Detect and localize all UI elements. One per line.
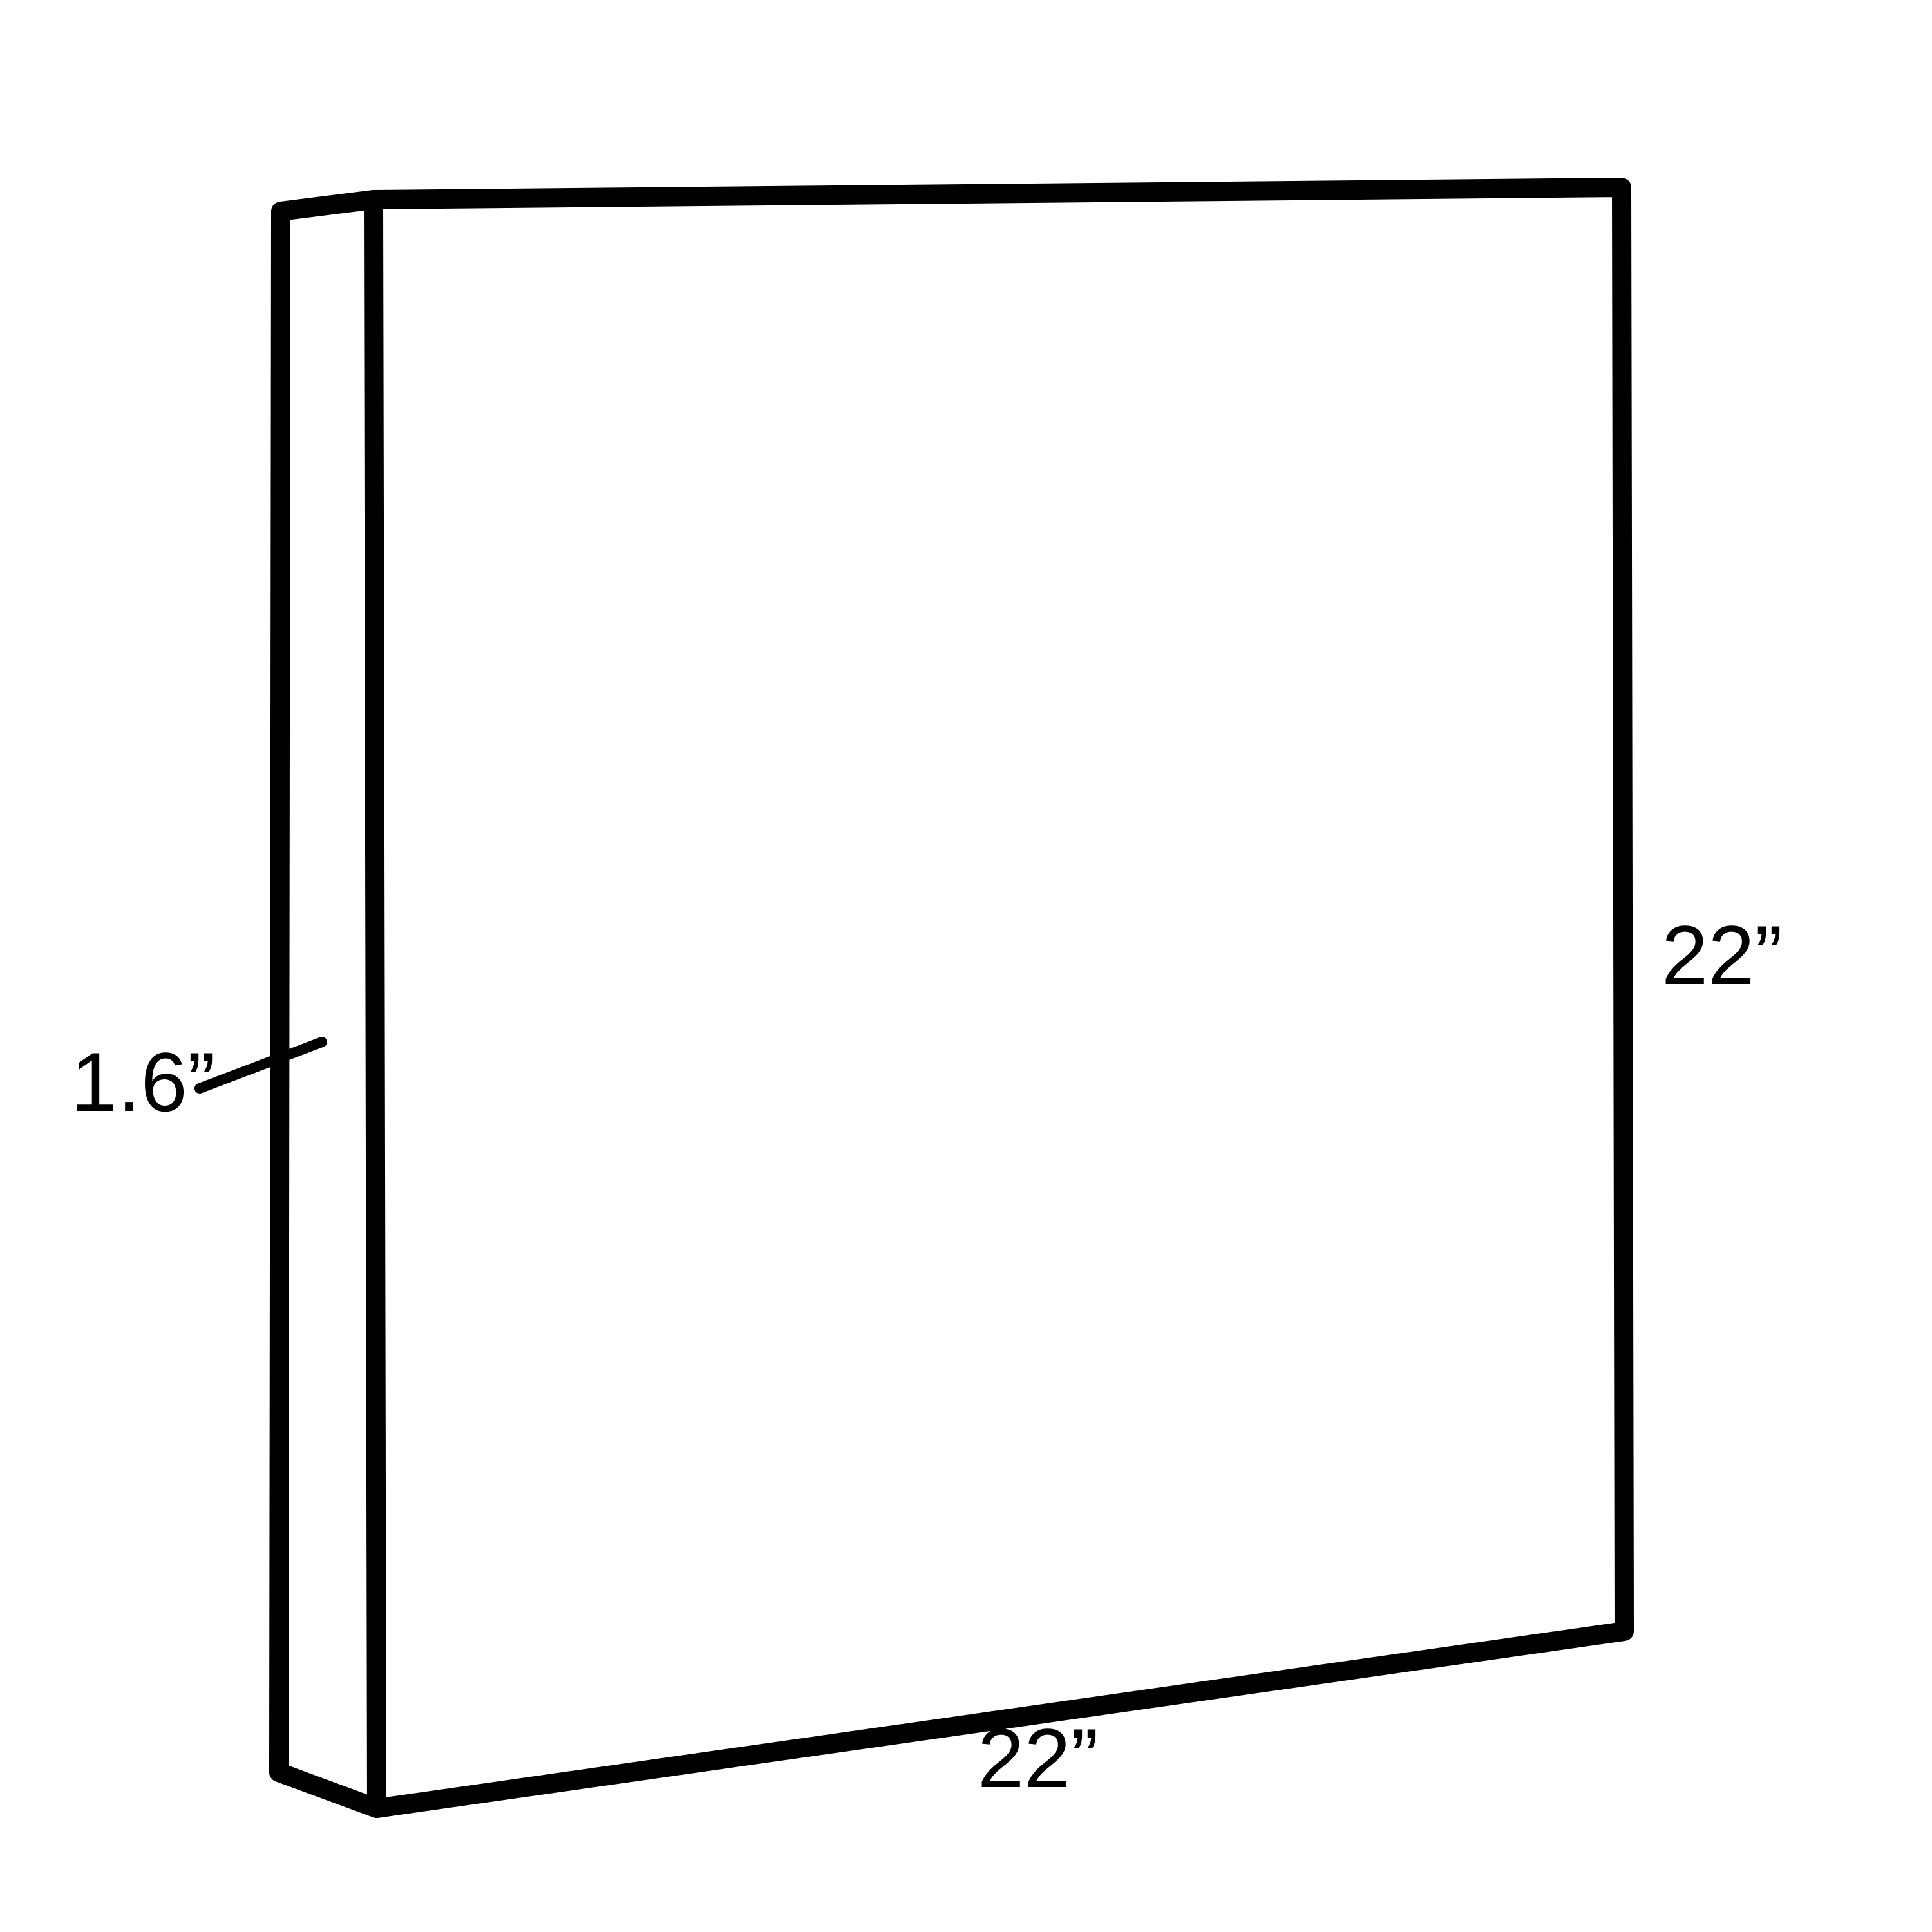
- panel-dimension-diagram: 1.6” 22” 22”: [0, 0, 1932, 1932]
- side-face-outline: [279, 200, 377, 1808]
- front-face-outline: [374, 187, 1624, 1808]
- height-dimension-label: 22”: [1662, 908, 1783, 1002]
- depth-leader-line: [200, 1042, 322, 1088]
- panel-diagram-canvas: 1.6” 22” 22”: [0, 0, 1932, 1932]
- depth-dimension-label: 1.6”: [71, 1035, 215, 1129]
- width-dimension-label: 22”: [978, 1711, 1099, 1805]
